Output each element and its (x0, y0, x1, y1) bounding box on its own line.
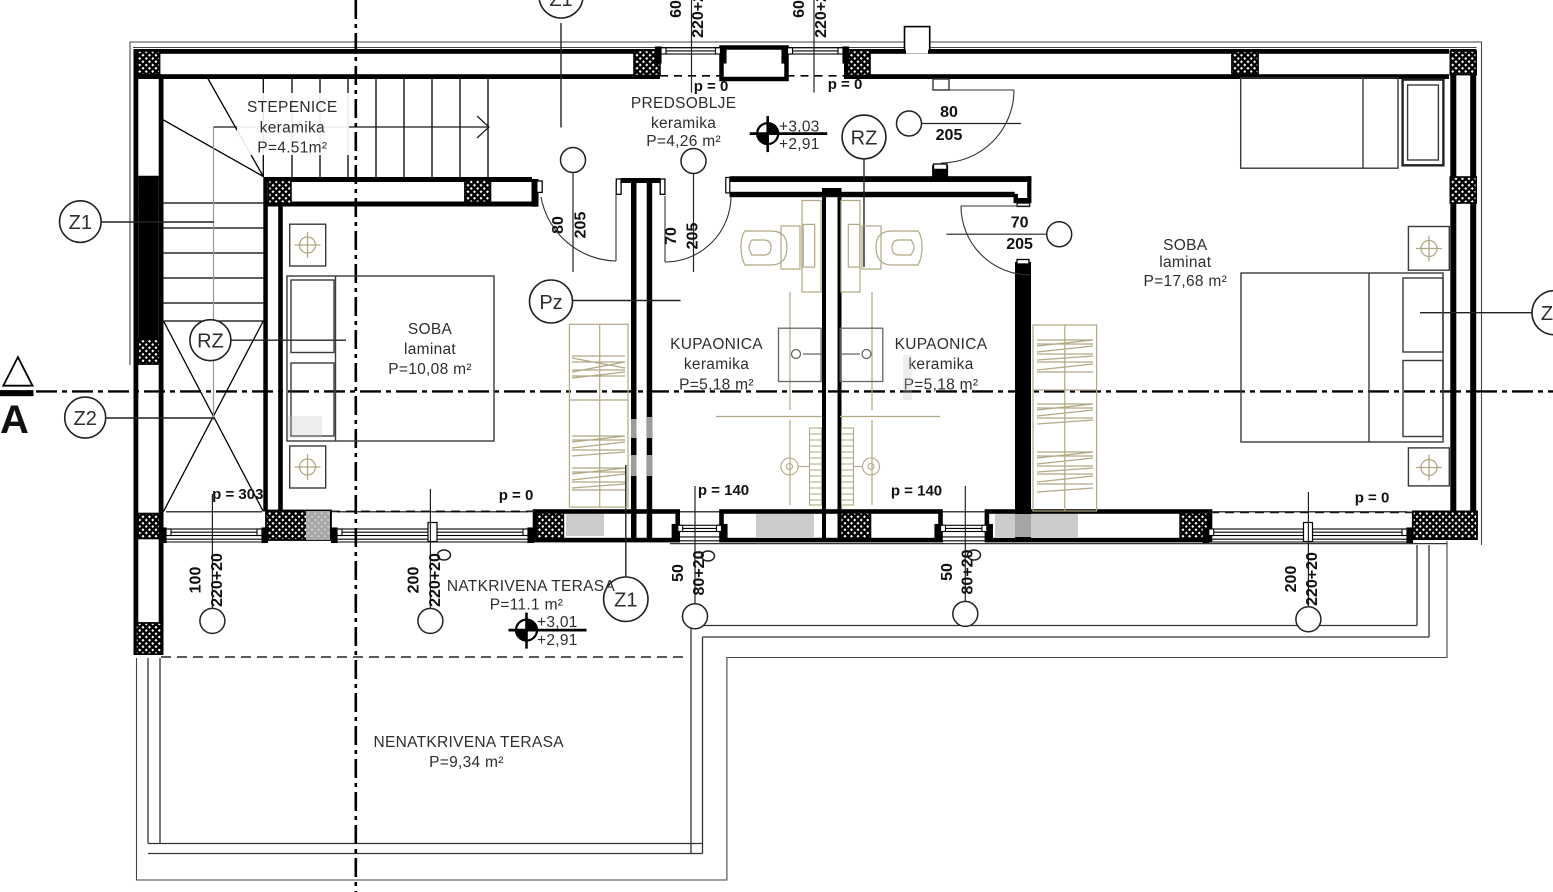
svg-text:70: 70 (1011, 215, 1029, 232)
svg-text:P=4,26 m²: P=4,26 m² (646, 133, 721, 150)
svg-text:+3,03: +3,03 (779, 119, 820, 136)
svg-text:+2,91: +2,91 (779, 136, 820, 153)
svg-text:50: 50 (939, 563, 956, 581)
svg-text:P=4.51m²: P=4.51m² (257, 140, 327, 157)
svg-text:P=5,18 m²: P=5,18 m² (904, 377, 979, 394)
svg-text:P=11.1 m²: P=11.1 m² (490, 597, 564, 614)
svg-text:A: A (0, 398, 29, 442)
svg-text:KUPAONICA: KUPAONICA (670, 336, 763, 353)
svg-text:50: 50 (670, 564, 687, 582)
svg-text:p = 0: p = 0 (828, 76, 863, 93)
svg-text:p = 0: p = 0 (694, 78, 729, 95)
svg-text:60: 60 (668, 0, 685, 18)
svg-text:p = 140: p = 140 (698, 482, 749, 499)
svg-text:p = 0: p = 0 (499, 487, 534, 504)
svg-text:220+20: 220+20 (1304, 552, 1321, 606)
svg-text:RZ: RZ (197, 331, 224, 353)
svg-text:Z1: Z1 (549, 0, 572, 11)
svg-text:Z: Z (1541, 303, 1553, 325)
svg-text:80: 80 (940, 104, 958, 121)
svg-text:NATKRIVENA TERASA: NATKRIVENA TERASA (447, 578, 616, 595)
svg-text:+2,91: +2,91 (537, 632, 578, 649)
svg-text:laminat: laminat (404, 341, 456, 358)
svg-text:Z1: Z1 (614, 590, 637, 612)
svg-text:SOBA: SOBA (408, 321, 453, 338)
svg-text:220+20: 220+20 (427, 553, 444, 607)
svg-text:+3,01: +3,01 (537, 614, 578, 631)
svg-text:keramika: keramika (908, 356, 973, 373)
svg-text:p = 303: p = 303 (212, 486, 263, 503)
svg-text:STEPENICE: STEPENICE (247, 99, 338, 116)
svg-text:200: 200 (406, 567, 423, 594)
svg-text:200: 200 (1283, 566, 1300, 593)
svg-text:P=10,08 m²: P=10,08 m² (388, 361, 472, 378)
svg-text:P=9,34 m²: P=9,34 m² (429, 754, 504, 771)
svg-text:205: 205 (573, 212, 590, 239)
svg-text:80+20: 80+20 (691, 550, 708, 595)
svg-text:p = 140: p = 140 (891, 483, 942, 500)
svg-text:p = 0: p = 0 (1355, 490, 1390, 507)
svg-text:205: 205 (685, 223, 702, 250)
svg-text:205: 205 (1006, 236, 1033, 253)
svg-text:60: 60 (791, 0, 808, 18)
svg-text:Z2: Z2 (74, 408, 97, 430)
svg-text:SOBA: SOBA (1163, 237, 1208, 254)
svg-text:80: 80 (550, 216, 567, 234)
svg-text:220+20: 220+20 (813, 0, 830, 38)
svg-text:P=5,18 m²: P=5,18 m² (679, 377, 754, 394)
svg-text:keramika: keramika (651, 115, 716, 132)
svg-text:80+20: 80+20 (960, 549, 977, 594)
svg-text:Z1: Z1 (69, 212, 92, 234)
svg-text:100: 100 (188, 567, 205, 594)
svg-text:NENATKRIVENA TERASA: NENATKRIVENA TERASA (374, 734, 565, 751)
svg-text:PREDSOBLJE: PREDSOBLJE (631, 95, 737, 112)
svg-text:205: 205 (936, 127, 963, 144)
svg-text:RZ: RZ (851, 128, 878, 150)
svg-text:keramika: keramika (260, 120, 325, 137)
svg-text:laminat: laminat (1159, 254, 1211, 271)
svg-text:220+20: 220+20 (690, 0, 707, 38)
svg-text:220+20: 220+20 (209, 553, 226, 607)
svg-text:70: 70 (663, 227, 680, 245)
svg-text:P=17,68 m²: P=17,68 m² (1144, 273, 1228, 290)
svg-text:keramika: keramika (684, 356, 749, 373)
svg-text:KUPAONICA: KUPAONICA (895, 336, 988, 353)
svg-text:Pz: Pz (539, 292, 562, 314)
